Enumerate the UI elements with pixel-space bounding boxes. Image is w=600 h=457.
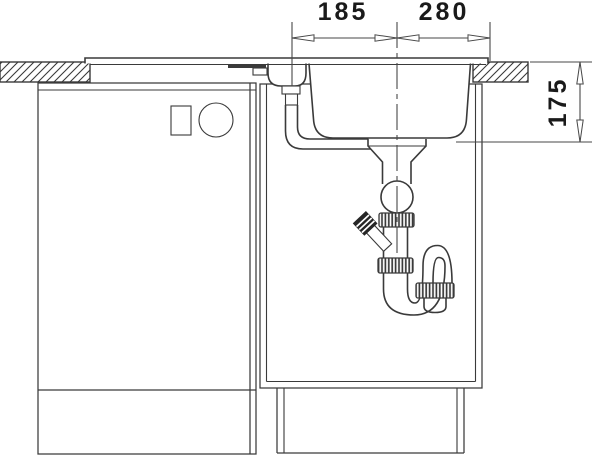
sink-installation-diagram: 185 280 175	[0, 0, 600, 457]
cabinet-front-circle-detail	[199, 103, 233, 137]
coupling-nut-middle	[378, 258, 413, 273]
sink-rim	[85, 58, 488, 64]
arrow-right-icon	[468, 35, 490, 41]
arrow-right-icon	[375, 35, 397, 41]
dim-top-right-label: 280	[419, 0, 470, 26]
small-bowl-drain-flange	[282, 86, 300, 94]
small-bowl-drain-body	[286, 94, 298, 105]
small-bowl	[268, 64, 306, 87]
arrow-down-icon	[577, 120, 583, 142]
sink-base-cabinet	[260, 84, 482, 453]
arrow-left-icon	[292, 35, 314, 41]
main-bowl	[309, 64, 471, 139]
worktop-left-section	[0, 62, 90, 82]
left-cabinet	[38, 83, 256, 454]
left-cabinet-body	[38, 83, 256, 454]
sink-cabinet-plinth	[277, 388, 464, 453]
mounting-clip	[253, 68, 267, 75]
coupling-nut-outlet	[416, 283, 454, 298]
cabinet-front-rectangle-detail	[171, 106, 191, 135]
dim-top-left-label: 185	[318, 0, 369, 26]
arrow-up-icon	[577, 62, 583, 84]
trap-outlet-arch-outer	[423, 246, 452, 284]
diagram-canvas: 185 280 175	[0, 0, 600, 457]
dim-right-label: 175	[544, 77, 572, 128]
arrow-left-icon	[397, 35, 419, 41]
trap-outlet-arch-inner	[433, 258, 445, 284]
